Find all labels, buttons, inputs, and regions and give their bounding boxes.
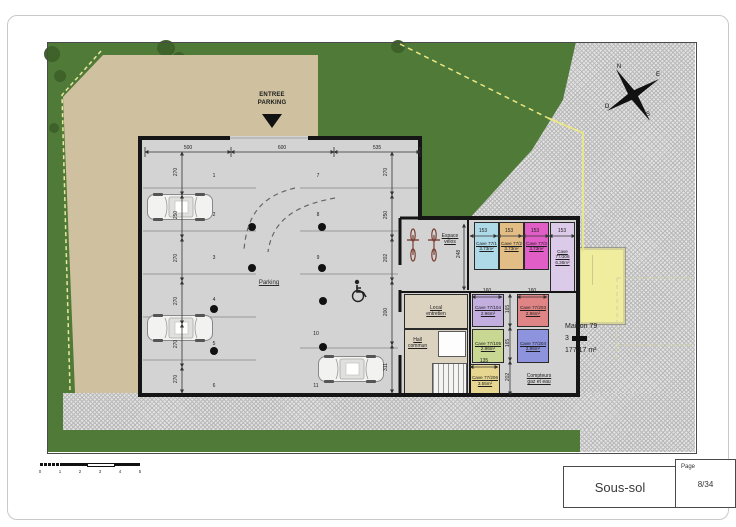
- dim-label: 165: [505, 296, 511, 322]
- spot-number: 10: [311, 331, 321, 337]
- dim-label: 270: [173, 364, 179, 394]
- cave-name: Cave 77/1: [476, 241, 497, 246]
- dim-label: 160: [475, 288, 499, 294]
- dim-label: 165: [505, 330, 511, 356]
- plan-title: Sous-sol: [595, 480, 646, 495]
- spot-number: 6: [209, 383, 219, 389]
- tree: [44, 46, 60, 62]
- stairs: [432, 363, 467, 394]
- maison-area: 177.17 m²: [565, 347, 623, 354]
- dim-label: 535: [359, 145, 395, 151]
- title-block-plan: Sous-sol: [563, 466, 677, 508]
- spot-number: 1: [209, 173, 219, 179]
- tree: [391, 40, 405, 53]
- spot-number: 3: [209, 255, 219, 261]
- cave-77-206: Cave 77/2063.55m²: [470, 364, 500, 397]
- meters-line2: gaz et eau: [527, 379, 550, 385]
- spot-number: 7: [313, 173, 323, 179]
- scale-bar-dash: [56, 463, 59, 466]
- spot-number: 4: [209, 297, 219, 303]
- maison-name: Maison 79: [565, 323, 623, 330]
- section-marker-icon: [572, 336, 587, 341]
- cave-name: Cave 77/104: [475, 305, 501, 310]
- entrance-label-line2: PARKING: [248, 100, 296, 106]
- dim-label: 153: [471, 228, 495, 234]
- cave-77-204: Cave 77/2042.96m²: [517, 329, 549, 363]
- cave-area: 2.96m²: [526, 346, 540, 351]
- dim-label: 248: [456, 239, 462, 269]
- cave-area: 2.96m²: [481, 346, 495, 351]
- meters-label: Compteurs gaz et eau: [516, 374, 562, 386]
- dim-label: 153: [497, 228, 521, 234]
- cave-name: Cave 77/203: [520, 305, 546, 310]
- scale-tick: 3: [95, 469, 105, 474]
- scale-bar-segment: [60, 463, 87, 466]
- scale-tick: 0: [35, 469, 45, 474]
- dim-label: 160: [520, 288, 544, 294]
- scale-tick: 4: [115, 469, 125, 474]
- dim-label: 270: [173, 286, 179, 316]
- spot-number: 2: [209, 212, 219, 218]
- cave-name: Cave 77/306: [555, 249, 569, 259]
- scale-tick: 5: [135, 469, 145, 474]
- dim-label: 153: [550, 228, 574, 234]
- dim-label: 250: [383, 200, 389, 230]
- dim-label: 153: [523, 228, 547, 234]
- cave-name: Cave 77/3: [526, 241, 547, 246]
- dim-label: 135: [472, 358, 496, 364]
- scale-bar-dash: [48, 463, 51, 466]
- maison-levels-value: 3: [565, 335, 569, 342]
- cave-area: 3.73m²: [504, 246, 518, 251]
- cave-area: 6.36m²: [555, 260, 569, 265]
- bike-line2: vélos: [444, 239, 456, 245]
- scale-tick: 2: [75, 469, 85, 474]
- compass-north: N: [614, 64, 624, 70]
- cave-name: Cave 77/105: [475, 341, 501, 346]
- dim-label: 270: [173, 157, 179, 187]
- page-label: Page: [681, 464, 695, 470]
- hall-commun-label-2: commun: [408, 343, 427, 349]
- floor-plan-page: Local entretien Hall commun Cave 77/13.7…: [0, 0, 736, 527]
- cave-area: 3.73m²: [479, 246, 493, 251]
- dim-label: 270: [173, 243, 179, 273]
- scale-tick: 1: [55, 469, 65, 474]
- maison-79-footprint: [579, 248, 625, 324]
- title-block-page: Page 8/34: [675, 459, 736, 508]
- scale-bar-dash: [44, 463, 47, 466]
- dim-label: 311: [383, 352, 389, 382]
- dim-label: 270: [383, 157, 389, 187]
- parking-label: Parking: [249, 280, 289, 286]
- cave-area: 3.55m²: [478, 381, 492, 386]
- compass-south: S: [643, 112, 653, 118]
- scale-bar-segment: [87, 463, 115, 467]
- room-local-entretien: Local entretien: [404, 294, 468, 329]
- compass-east: E: [653, 72, 663, 78]
- scale-bar-dash: [52, 463, 55, 466]
- dim-label: 200: [383, 297, 389, 327]
- compass-west: O: [602, 104, 612, 110]
- cave-area: 3.73m²: [529, 246, 543, 251]
- dim-label: 250: [173, 200, 179, 230]
- hatched-sidewalk-bottom: [63, 393, 695, 430]
- spot-number: 9: [313, 255, 323, 261]
- cave-area: 2.96m²: [481, 311, 495, 316]
- cave-77-104: Cave 77/1042.96m²: [472, 294, 504, 327]
- scale-bar-segment: [114, 463, 140, 466]
- spot-number: 5: [209, 341, 219, 347]
- page-number: 8/34: [676, 480, 735, 489]
- dim-label: 202: [505, 364, 511, 390]
- garage-floor: [138, 136, 422, 397]
- elevator: [438, 331, 466, 357]
- maison-levels: 3: [565, 335, 623, 342]
- cave-name: Cave 77/206: [472, 375, 498, 380]
- cave-area: 2.96m²: [526, 311, 540, 316]
- dim-label: 202: [383, 243, 389, 273]
- local-entretien-label-2: entretien: [426, 311, 445, 317]
- cave-name: Cave 77/2: [501, 241, 522, 246]
- maison-detail-line: [592, 255, 593, 285]
- tree: [49, 123, 59, 133]
- dim-label: 270: [173, 329, 179, 359]
- dim-label: 600: [264, 145, 300, 151]
- entrance-label-line1: ENTREE: [248, 92, 296, 98]
- scale-bar-dash: [40, 463, 43, 466]
- cave-name: Cave 77/204: [520, 341, 546, 346]
- spot-number: 11: [311, 383, 321, 389]
- spot-number: 8: [313, 212, 323, 218]
- tree: [54, 70, 66, 82]
- tree: [157, 40, 175, 56]
- cave-77-203: Cave 77/2032.96m²: [517, 294, 549, 327]
- dim-label: 500: [170, 145, 206, 151]
